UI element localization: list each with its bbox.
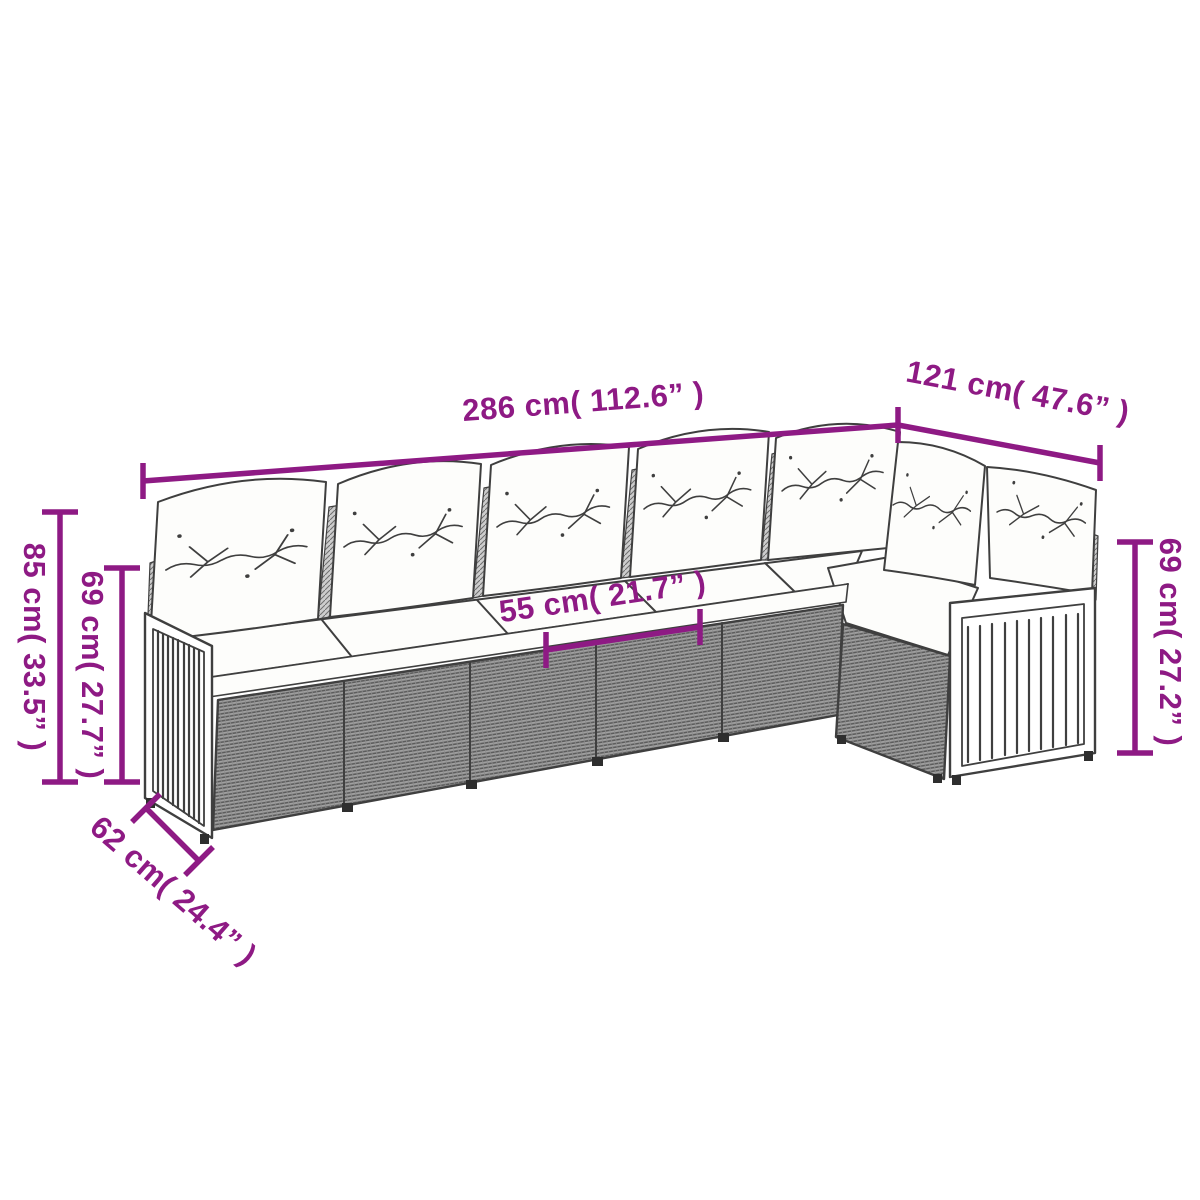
- back-pillow-5: [768, 424, 900, 560]
- left-wood-panel: [145, 613, 212, 838]
- back-pillow-3: [483, 444, 629, 596]
- sofa-dimension-diagram: 286 cm( 112.6” ) 121 cm( 47.6” ) 85 cm( …: [0, 0, 1200, 1200]
- dim-right-height-label: 69 cm( 27.2” ): [1153, 538, 1188, 747]
- back-pillow-7-corner: [987, 467, 1096, 594]
- dim-left-height-inner: 69 cm( 27.7” ): [75, 568, 140, 782]
- dim-right-height: 69 cm( 27.2” ): [1117, 538, 1188, 753]
- dim-left-height-outer: 85 cm( 33.5” ): [17, 512, 78, 782]
- back-pillow-6-corner: [884, 442, 985, 585]
- back-pillow-4: [630, 429, 769, 577]
- dim-right-depth-label: 121 cm( 47.6” ): [903, 354, 1132, 430]
- dim-top-length-label: 286 cm( 112.6” ): [461, 375, 705, 428]
- back-pillow-1: [150, 479, 326, 641]
- right-wood-panel: [950, 588, 1095, 777]
- dim-left-height-outer-label: 85 cm( 33.5” ): [17, 543, 52, 752]
- back-pillow-2: [330, 461, 481, 617]
- diagram-canvas: 286 cm( 112.6” ) 121 cm( 47.6” ) 85 cm( …: [0, 0, 1200, 1200]
- sofa-illustration: [145, 424, 1098, 844]
- dim-left-height-inner-label: 69 cm( 27.7” ): [75, 571, 110, 780]
